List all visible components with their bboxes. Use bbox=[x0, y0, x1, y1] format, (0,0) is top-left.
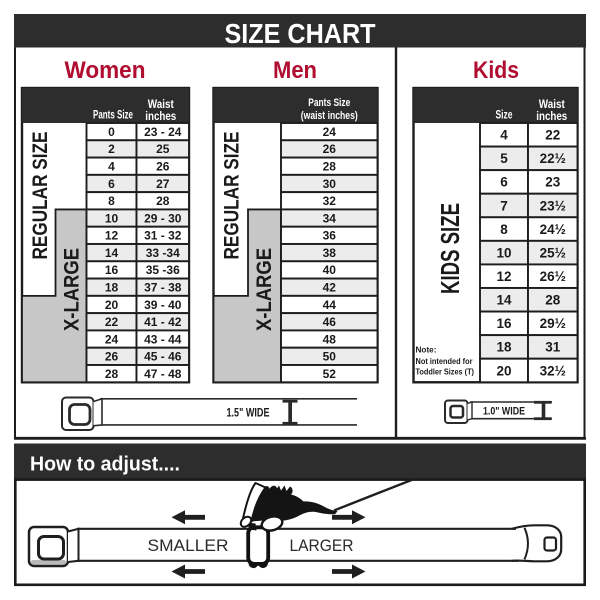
svg-text:26½: 26½ bbox=[540, 269, 566, 284]
svg-text:Pants Size: Pants Size bbox=[93, 110, 133, 122]
svg-text:25: 25 bbox=[156, 142, 170, 156]
svg-text:1.0" WIDE: 1.0" WIDE bbox=[483, 406, 525, 418]
svg-text:6: 6 bbox=[500, 175, 508, 190]
svg-text:inches: inches bbox=[536, 111, 567, 123]
svg-text:28: 28 bbox=[105, 367, 119, 381]
svg-text:26: 26 bbox=[156, 160, 170, 174]
svg-text:16: 16 bbox=[496, 316, 512, 331]
svg-text:50: 50 bbox=[323, 350, 337, 364]
svg-text:34: 34 bbox=[323, 211, 337, 225]
svg-text:28: 28 bbox=[545, 293, 561, 308]
svg-text:40: 40 bbox=[323, 263, 337, 277]
svg-text:SMALLER: SMALLER bbox=[148, 536, 229, 555]
svg-text:52: 52 bbox=[323, 367, 337, 381]
svg-text:Men: Men bbox=[273, 57, 317, 84]
svg-text:8: 8 bbox=[108, 194, 115, 208]
svg-text:Toddler Sizes (T): Toddler Sizes (T) bbox=[416, 367, 475, 377]
svg-text:X-LARGE: X-LARGE bbox=[61, 248, 84, 331]
svg-text:Waist: Waist bbox=[148, 99, 174, 111]
svg-text:LARGER: LARGER bbox=[290, 536, 354, 555]
svg-text:39 - 40: 39 - 40 bbox=[144, 298, 182, 312]
svg-text:SIZE CHART: SIZE CHART bbox=[225, 18, 376, 49]
svg-text:30: 30 bbox=[323, 177, 337, 191]
svg-text:23: 23 bbox=[545, 175, 561, 190]
svg-text:14: 14 bbox=[105, 246, 119, 260]
svg-text:18: 18 bbox=[496, 340, 512, 355]
svg-text:45 - 46: 45 - 46 bbox=[144, 350, 182, 364]
svg-text:23 - 24: 23 - 24 bbox=[144, 125, 182, 139]
svg-text:Note:: Note: bbox=[416, 345, 437, 355]
svg-text:43 - 44: 43 - 44 bbox=[144, 332, 182, 346]
svg-text:22½: 22½ bbox=[540, 151, 566, 166]
svg-text:31: 31 bbox=[545, 340, 561, 355]
svg-text:REGULAR SIZE: REGULAR SIZE bbox=[29, 132, 52, 260]
svg-text:32: 32 bbox=[323, 194, 337, 208]
svg-text:12: 12 bbox=[105, 229, 119, 243]
svg-text:48: 48 bbox=[323, 332, 337, 346]
svg-text:16: 16 bbox=[105, 263, 119, 277]
svg-text:26: 26 bbox=[105, 350, 119, 364]
svg-text:8: 8 bbox=[500, 222, 508, 237]
svg-text:28: 28 bbox=[323, 160, 337, 174]
svg-text:29 - 30: 29 - 30 bbox=[144, 211, 182, 225]
svg-text:REGULAR SIZE: REGULAR SIZE bbox=[221, 132, 244, 260]
svg-text:inches: inches bbox=[145, 111, 176, 123]
svg-text:5: 5 bbox=[500, 151, 508, 166]
svg-text:10: 10 bbox=[105, 211, 119, 225]
svg-text:20: 20 bbox=[105, 298, 119, 312]
svg-text:32½: 32½ bbox=[540, 363, 566, 378]
svg-text:47 - 48: 47 - 48 bbox=[144, 367, 182, 381]
svg-text:1.5" WIDE: 1.5" WIDE bbox=[227, 408, 270, 420]
svg-text:X-LARGE: X-LARGE bbox=[253, 248, 276, 331]
svg-text:12: 12 bbox=[496, 269, 511, 284]
svg-text:26: 26 bbox=[323, 142, 337, 156]
svg-text:28: 28 bbox=[156, 194, 170, 208]
svg-text:Size: Size bbox=[496, 110, 513, 122]
svg-text:How to adjust....: How to adjust.... bbox=[30, 454, 180, 476]
svg-text:41 - 42: 41 - 42 bbox=[144, 315, 182, 329]
svg-text:35 -36: 35 -36 bbox=[146, 263, 180, 277]
svg-text:4: 4 bbox=[500, 128, 508, 143]
svg-text:4: 4 bbox=[108, 160, 115, 174]
svg-text:27: 27 bbox=[156, 177, 170, 191]
svg-text:42: 42 bbox=[323, 281, 337, 295]
svg-text:33 -34: 33 -34 bbox=[146, 246, 180, 260]
svg-text:18: 18 bbox=[105, 281, 119, 295]
svg-text:10: 10 bbox=[496, 245, 511, 260]
svg-text:7: 7 bbox=[500, 198, 508, 213]
svg-text:KIDS SIZE: KIDS SIZE bbox=[435, 203, 465, 294]
svg-text:22: 22 bbox=[105, 315, 119, 329]
svg-text:Waist: Waist bbox=[539, 99, 565, 111]
svg-text:31 - 32: 31 - 32 bbox=[144, 229, 182, 243]
svg-text:6: 6 bbox=[108, 177, 115, 191]
svg-text:20: 20 bbox=[496, 363, 511, 378]
svg-text:23½: 23½ bbox=[540, 198, 566, 213]
svg-text:25½: 25½ bbox=[540, 245, 566, 260]
svg-text:Women: Women bbox=[65, 57, 146, 84]
svg-text:36: 36 bbox=[323, 229, 337, 243]
svg-text:38: 38 bbox=[323, 246, 337, 260]
svg-text:0: 0 bbox=[108, 125, 115, 139]
svg-text:46: 46 bbox=[323, 315, 337, 329]
svg-text:24: 24 bbox=[323, 125, 337, 139]
svg-text:14: 14 bbox=[496, 293, 512, 308]
svg-text:44: 44 bbox=[323, 298, 337, 312]
svg-text:Pants Size: Pants Size bbox=[308, 97, 350, 109]
svg-text:22: 22 bbox=[545, 128, 560, 143]
svg-text:24½: 24½ bbox=[540, 222, 566, 237]
svg-text:37 - 38: 37 - 38 bbox=[144, 281, 182, 295]
svg-text:2: 2 bbox=[108, 142, 115, 156]
svg-text:(waist inches): (waist inches) bbox=[301, 110, 358, 122]
svg-text:29½: 29½ bbox=[540, 316, 566, 331]
svg-text:Kids: Kids bbox=[473, 57, 519, 84]
svg-text:24: 24 bbox=[105, 332, 119, 346]
svg-text:Not intended for: Not intended for bbox=[416, 356, 474, 366]
